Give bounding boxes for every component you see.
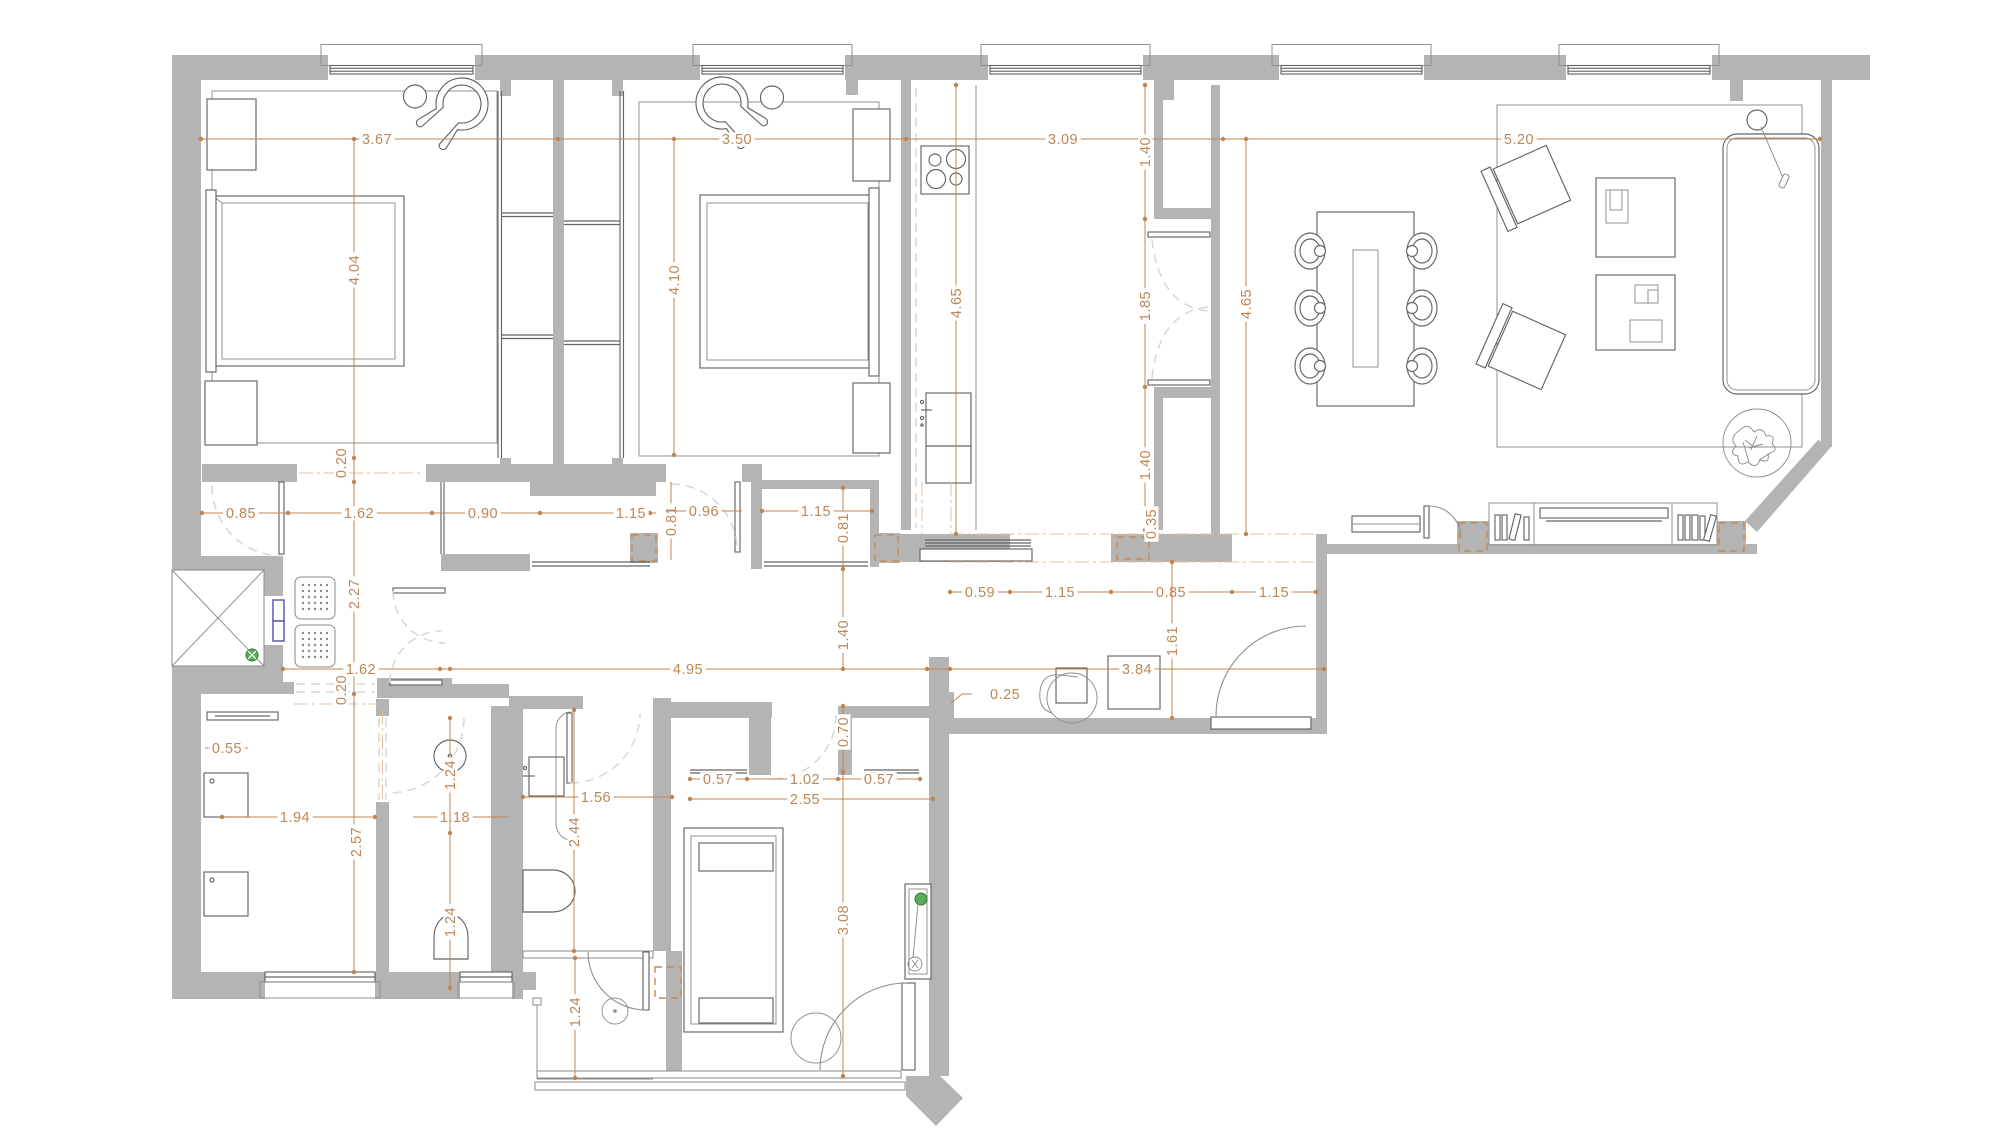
svg-text:4.95: 4.95 — [673, 662, 703, 678]
svg-text:1.18: 1.18 — [440, 810, 470, 826]
svg-text:1.24: 1.24 — [568, 997, 584, 1027]
svg-text:0.55: 0.55 — [212, 741, 242, 757]
svg-text:1.61: 1.61 — [1165, 626, 1181, 656]
svg-text:2.27: 2.27 — [347, 579, 363, 609]
svg-text:3.09: 3.09 — [1048, 132, 1078, 148]
svg-text:0.85: 0.85 — [1156, 585, 1186, 601]
svg-text:0.81: 0.81 — [664, 506, 680, 536]
svg-text:5.20: 5.20 — [1504, 132, 1534, 148]
svg-text:0.70: 0.70 — [836, 717, 852, 747]
svg-text:0.57: 0.57 — [703, 772, 733, 788]
svg-text:2.55: 2.55 — [790, 792, 820, 808]
svg-text:0.20: 0.20 — [334, 675, 350, 705]
svg-text:0.96: 0.96 — [689, 504, 719, 520]
svg-text:0.59: 0.59 — [965, 585, 995, 601]
svg-text:1.15: 1.15 — [801, 504, 831, 520]
svg-text:2.44: 2.44 — [567, 817, 583, 847]
svg-text:3.84: 3.84 — [1122, 662, 1152, 678]
svg-text:4.04: 4.04 — [347, 255, 363, 285]
svg-text:1.15: 1.15 — [1045, 585, 1075, 601]
svg-text:3.67: 3.67 — [362, 132, 392, 148]
svg-text:1.24: 1.24 — [443, 760, 459, 790]
svg-text:1.40: 1.40 — [1138, 450, 1154, 480]
svg-text:1.85: 1.85 — [1138, 291, 1154, 321]
svg-text:1.15: 1.15 — [616, 506, 646, 522]
svg-text:4.65: 4.65 — [1239, 289, 1255, 319]
svg-text:1.15: 1.15 — [1259, 585, 1289, 601]
svg-text:0.57: 0.57 — [864, 772, 894, 788]
svg-text:1.56: 1.56 — [581, 790, 611, 806]
svg-text:1.62: 1.62 — [344, 506, 374, 522]
svg-text:0.85: 0.85 — [226, 506, 256, 522]
svg-text:4.65: 4.65 — [949, 288, 965, 318]
svg-text:1.94: 1.94 — [280, 810, 310, 826]
svg-text:1.24: 1.24 — [443, 907, 459, 937]
svg-text:0.90: 0.90 — [468, 506, 498, 522]
svg-text:3.08: 3.08 — [836, 905, 852, 935]
svg-text:1.40: 1.40 — [1138, 137, 1154, 167]
svg-text:4.10: 4.10 — [667, 265, 683, 295]
svg-text:1.40: 1.40 — [836, 620, 852, 650]
svg-text:0.35: 0.35 — [1144, 509, 1160, 539]
svg-text:0.81: 0.81 — [836, 513, 852, 543]
svg-text:1.02: 1.02 — [790, 772, 820, 788]
svg-text:2.57: 2.57 — [349, 827, 365, 857]
svg-text:0.25: 0.25 — [990, 687, 1020, 703]
svg-text:0.20: 0.20 — [334, 448, 350, 478]
svg-text:1.62: 1.62 — [346, 662, 376, 678]
svg-text:3.50: 3.50 — [722, 132, 752, 148]
